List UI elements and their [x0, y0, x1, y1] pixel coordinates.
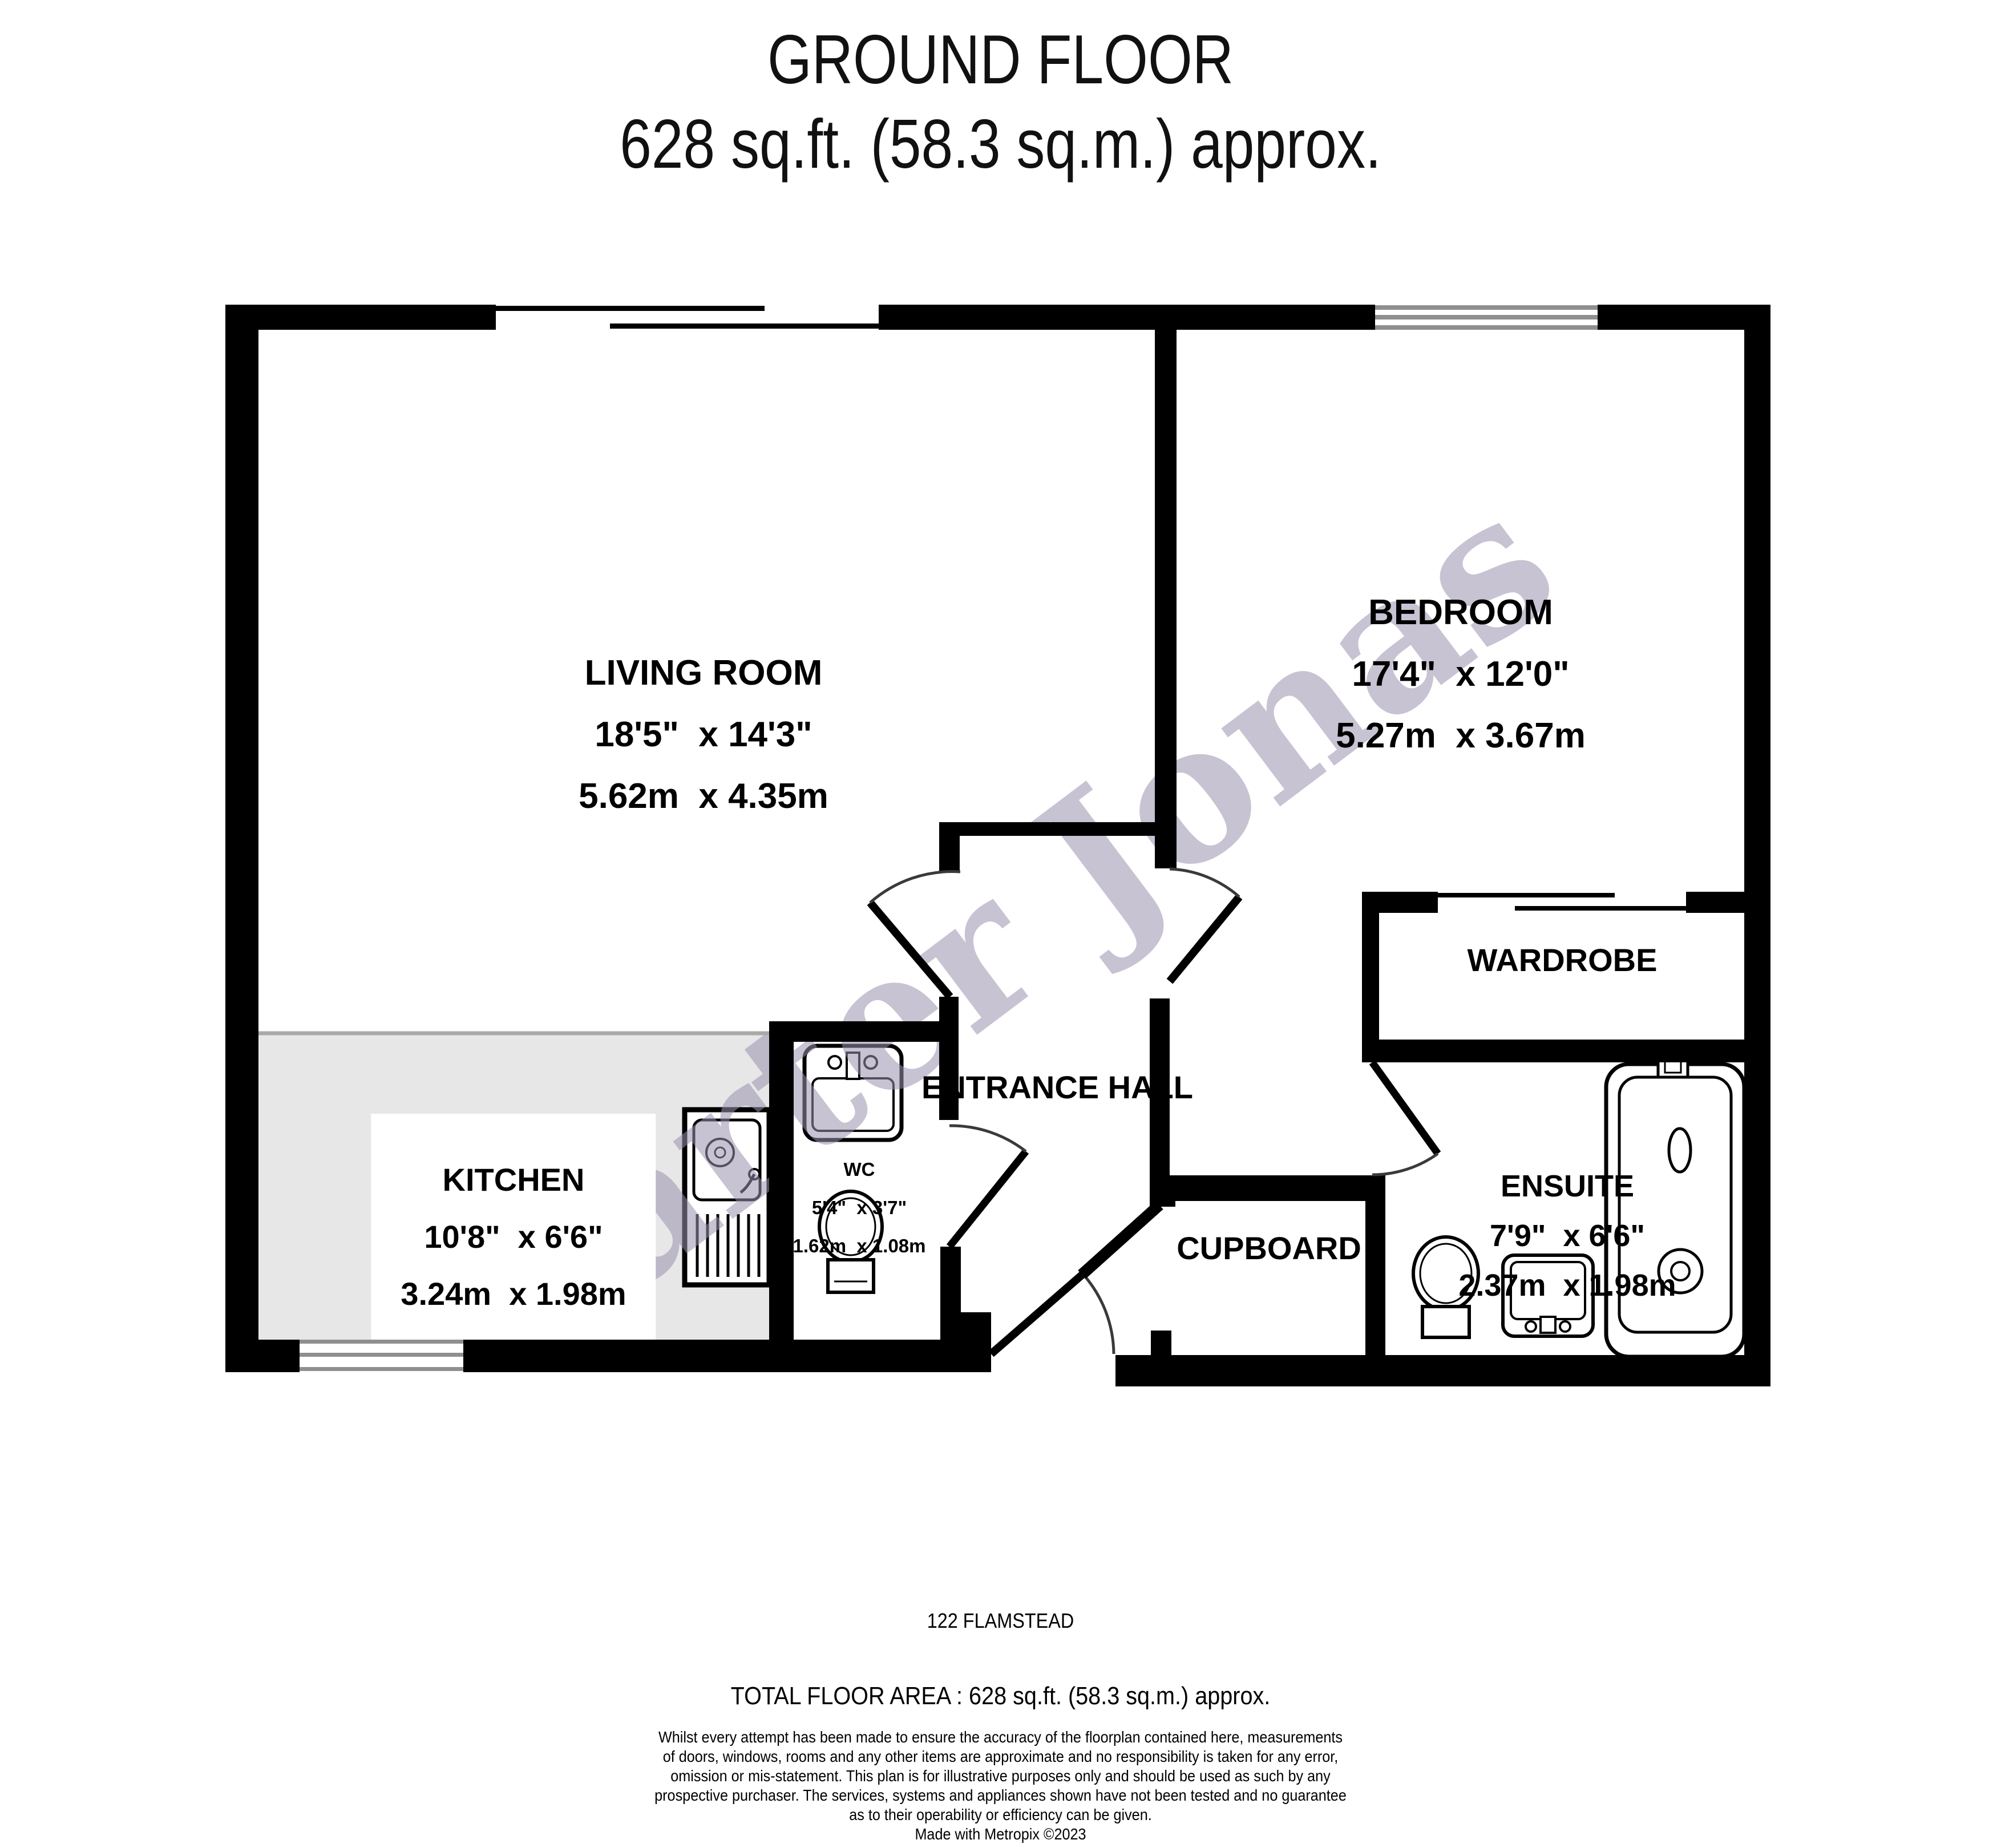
label-wardrobe: WARDROBE	[1468, 944, 1658, 976]
disclaimer-line: omission or mis-statement. This plan is …	[100, 1766, 1901, 1786]
floorplan-page: GROUND FLOOR 628 sq.ft. (58.3 sq.m.) app…	[0, 0, 2001, 1848]
kitchen-name: KITCHEN	[401, 1162, 626, 1198]
label-cupboard: CUPBOARD	[1177, 1232, 1361, 1264]
kitchen-imperial: 10'8" x 6'6"	[401, 1219, 626, 1255]
label-ensuite: ENSUITE 7'9" x 6'6" 2.37m x 1.98m	[1458, 1151, 1676, 1321]
ensuite-metric: 2.37m x 1.98m	[1458, 1271, 1676, 1300]
living-room-imperial: 18'5" x 14'3"	[579, 714, 828, 755]
label-kitchen: KITCHEN 10'8" x 6'6" 3.24m x 1.98m	[371, 1114, 656, 1350]
living-room-window-icon	[496, 306, 879, 329]
living-room-name: LIVING ROOM	[579, 653, 828, 694]
wc-imperial: 5'4" x 3'7"	[793, 1199, 926, 1216]
disclaimer-line: Whilst every attempt has been made to en…	[100, 1728, 1901, 1747]
label-bedroom: BEDROOM 17'4" x 12'0" 5.27m x 3.67m	[1336, 572, 1586, 777]
disclaimer-line: as to their operability or efficiency ca…	[100, 1805, 1901, 1825]
bedroom-metric: 5.27m x 3.67m	[1336, 715, 1586, 757]
footer-total-area: TOTAL FLOOR AREA : 628 sq.ft. (58.3 sq.m…	[100, 1682, 1901, 1710]
kitchen-metric: 3.24m x 1.98m	[401, 1276, 626, 1312]
wc-door-icon	[949, 1126, 1026, 1247]
living-room-metric: 5.62m x 4.35m	[579, 776, 828, 817]
plan-title-area: 628 sq.ft. (58.3 sq.m.) approx.	[180, 102, 1821, 186]
bedroom-name: BEDROOM	[1336, 592, 1586, 633]
plan-title: GROUND FLOOR 628 sq.ft. (58.3 sq.m.) app…	[0, 17, 2001, 186]
disclaimer-line: of doors, windows, rooms and any other i…	[100, 1747, 1901, 1766]
wardrobe-sliding-door-icon	[1438, 893, 1686, 911]
label-wc: WC 5'4" x 3'7" 1.62m x 1.08m	[793, 1140, 926, 1275]
label-entrance-hall: ENTRANCE HALL	[921, 1071, 1193, 1103]
plan-title-floor: GROUND FLOOR	[180, 17, 1821, 102]
metropix-credit: Made with Metropix ©2023	[100, 1825, 1901, 1844]
disclaimer-line: prospective purchaser. The services, sys…	[100, 1786, 1901, 1805]
footer-disclaimer: Whilst every attempt has been made to en…	[100, 1728, 1901, 1844]
footer-address: 122 FLAMSTEAD	[100, 1609, 1901, 1633]
ensuite-name: ENSUITE	[1458, 1172, 1676, 1201]
front-door-icon	[991, 1205, 1159, 1354]
wc-metric: 1.62m x 1.08m	[793, 1237, 926, 1255]
bedroom-imperial: 17'4" x 12'0"	[1336, 654, 1586, 695]
ensuite-door-icon	[1372, 1062, 1438, 1175]
bedroom-window-icon	[1375, 305, 1598, 330]
label-living-room: LIVING ROOM 18'5" x 14'3" 5.62m x 4.35m	[579, 632, 828, 838]
ensuite-imperial: 7'9" x 6'6"	[1458, 1222, 1676, 1251]
wc-name: WC	[793, 1160, 926, 1178]
